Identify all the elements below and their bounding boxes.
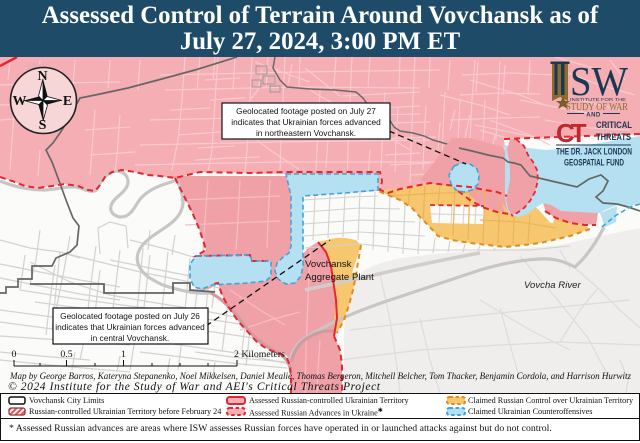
svg-text:N: N — [37, 69, 47, 84]
svg-text:© 2024 Institute for the Study: © 2024 Institute for the Study of War an… — [8, 381, 381, 393]
svg-text:Vovcha River: Vovcha River — [524, 280, 582, 291]
svg-text:Vovchansk: Vovchansk — [305, 259, 352, 270]
svg-text:Geolocated footage posted on J: Geolocated footage posted on July 27 — [236, 106, 376, 116]
svg-text:1: 1 — [121, 349, 126, 360]
svg-text:CRITICAL: CRITICAL — [596, 120, 632, 130]
svg-text:AND: AND — [586, 113, 601, 119]
svg-text:in central Vovchansk.: in central Vovchansk. — [91, 333, 169, 343]
svg-text:Aggregate Plant: Aggregate Plant — [305, 272, 374, 283]
svg-text:STUDY OF WAR: STUDY OF WAR — [566, 102, 628, 113]
svg-text:0.5: 0.5 — [60, 349, 72, 360]
svg-text:THE DR. JACK LONDON: THE DR. JACK LONDON — [556, 147, 632, 157]
svg-text:W: W — [13, 94, 27, 109]
svg-text:S: S — [39, 118, 47, 133]
svg-text:2 Kilometers: 2 Kilometers — [234, 349, 285, 360]
svg-text:E: E — [63, 94, 72, 109]
svg-text:indicates that Ukrainian force: indicates that Ukrainian forces advanced — [55, 322, 205, 332]
svg-text:CT: CT — [556, 118, 587, 148]
svg-text:0: 0 — [12, 349, 17, 360]
svg-text:THREATS: THREATS — [596, 132, 631, 142]
svg-text:Geolocated footage posted on J: Geolocated footage posted on July 26 — [60, 311, 200, 321]
svg-text:GEOSPATIAL FUND: GEOSPATIAL FUND — [564, 158, 624, 168]
svg-text:in northeastern Vovchansk.: in northeastern Vovchansk. — [256, 128, 356, 138]
svg-text:indicates that Ukrainian force: indicates that Ukrainian forces advanced — [231, 117, 381, 127]
